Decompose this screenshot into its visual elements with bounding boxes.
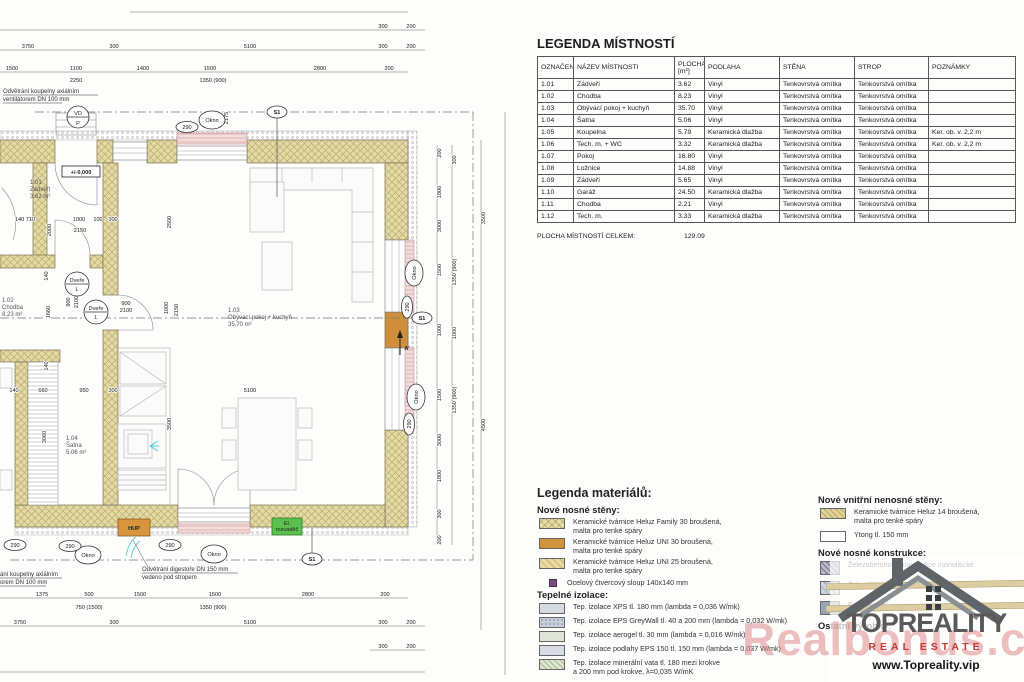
table-cell: Chodba bbox=[574, 91, 675, 103]
svg-text:S1: S1 bbox=[274, 110, 281, 116]
svg-text:290: 290 bbox=[405, 302, 411, 311]
table-column-header: POZNÁMKY bbox=[929, 57, 1016, 79]
dimension-label: 300 bbox=[378, 620, 387, 626]
table-row: 1.11Chodba2.21VinylTenkovrstvá omítkaTen… bbox=[538, 199, 1016, 211]
table-cell: Tech. m. + WC bbox=[574, 139, 675, 151]
svg-text:290: 290 bbox=[65, 544, 74, 550]
table-row: 1.03Obývací pokoj + kuchyň35.70VinylTenk… bbox=[538, 103, 1016, 115]
table-cell: Vinyl bbox=[705, 91, 780, 103]
dimension-label: 100 bbox=[93, 217, 102, 223]
table-column-header: NÁZEV MÍSTNOSTI bbox=[574, 57, 675, 79]
dimension-label: 300 bbox=[452, 155, 458, 164]
dimension-label: 200 bbox=[437, 535, 443, 544]
table-cell: 1.02 bbox=[538, 91, 574, 103]
vd-p-marker: VDP bbox=[67, 106, 89, 128]
dimension-label: 1350 (900) bbox=[199, 78, 226, 84]
dimension-label: 3000 bbox=[437, 434, 443, 446]
dimension-label: 950 bbox=[79, 388, 88, 394]
table-cell: Obývací pokoj + kuchyň bbox=[574, 103, 675, 115]
table-row: 1.10Garáž24.50Keramická dlažbaTenkovrstv… bbox=[538, 187, 1016, 199]
dimension-label: 1000 bbox=[452, 327, 458, 339]
materials-item-label: Ytong tl. 150 mm bbox=[854, 531, 908, 540]
materials-item-label: Tep. izolace minerální vata tl. 180 mezi… bbox=[573, 659, 720, 676]
plan-marker: S1 bbox=[412, 312, 432, 324]
table-cell bbox=[929, 175, 1016, 187]
table-cell: Tenkovrstvá omítka bbox=[780, 79, 855, 91]
plan-marker: 290 bbox=[59, 541, 81, 552]
svg-text:Okno: Okno bbox=[81, 553, 94, 559]
table-column-header: PODLAHA bbox=[705, 57, 780, 79]
table-cell: Tenkovrstvá omítka bbox=[855, 187, 929, 199]
dimension-label: 5100 bbox=[244, 620, 256, 626]
table-row: 1.12Tech. m.3.33Keramická dlažbaTenkovrs… bbox=[538, 211, 1016, 223]
dimension-label: 300 bbox=[108, 217, 117, 223]
dimension-label: 660 bbox=[38, 388, 47, 394]
dimension-label: 2150 bbox=[74, 228, 86, 234]
materials-item-label: Keramické tvárnice Heluz UNI 30 broušená… bbox=[573, 538, 713, 555]
table-cell: Tenkovrstvá omítka bbox=[855, 91, 929, 103]
table-column-header: OZNAČENÍ bbox=[538, 57, 574, 79]
table-cell: Tenkovrstvá omítka bbox=[855, 175, 929, 187]
sw-heluz14-swatch-icon bbox=[820, 508, 846, 519]
table-row: 1.08Ložnice14.88VinylTenkovrstvá omítkaT… bbox=[538, 163, 1016, 175]
table-cell bbox=[929, 79, 1016, 91]
svg-text:+/-0,000: +/-0,000 bbox=[71, 170, 92, 176]
dimension-label: 2800 bbox=[302, 592, 314, 598]
plan-marker: 290 bbox=[404, 413, 415, 435]
table-cell: 1.04 bbox=[538, 115, 574, 127]
dimension-label: 2100 bbox=[120, 308, 132, 314]
table-cell: Vinyl bbox=[705, 199, 780, 211]
plan-marker: 290 bbox=[176, 122, 198, 133]
table-row: 1.02Chodba8.23VinylTenkovrstvá omítkaTen… bbox=[538, 91, 1016, 103]
dimension-label: 5100 bbox=[244, 44, 256, 50]
sw-ytong-swatch-icon bbox=[820, 531, 846, 542]
watermark-tagline: REAL ESTATE bbox=[828, 641, 1024, 653]
dimension-label: 2150 bbox=[174, 304, 180, 316]
table-cell: 8.23 bbox=[675, 91, 705, 103]
table-row: 1.05Koupelna5.79Keramická dlažbaTenkovrs… bbox=[538, 127, 1016, 139]
plan-marker: 290 bbox=[159, 540, 181, 551]
materials-legend-item: Keramické tvárnice Heluz 14 broušená,mal… bbox=[818, 508, 1024, 525]
svg-text:ventilátorem DN 100 mm: ventilátorem DN 100 mm bbox=[3, 97, 69, 103]
sw-eps-swatch-icon bbox=[539, 617, 565, 628]
materials-item-label: Keramické tvárnice Heluz Family 30 brouš… bbox=[573, 518, 722, 535]
dimension-label: 3750 bbox=[22, 44, 34, 50]
dimension-label: 1400 bbox=[137, 66, 149, 72]
svg-text:290: 290 bbox=[182, 125, 191, 131]
svg-text:ání koupelny axiálním: ání koupelny axiálním bbox=[0, 572, 58, 578]
svg-text:P: P bbox=[76, 121, 80, 127]
dimension-label: 200 bbox=[380, 592, 389, 598]
table-cell: Tenkovrstvá omítka bbox=[780, 91, 855, 103]
materials-section-heading: Nové vnitřní nenosné stěny: bbox=[818, 495, 1024, 505]
table-cell: Pokoj bbox=[574, 151, 675, 163]
sw-uni25-swatch-icon bbox=[539, 558, 565, 569]
svg-text:L: L bbox=[94, 315, 97, 321]
watermark-url: www.Topreality.vip bbox=[828, 658, 1024, 672]
table-cell bbox=[929, 187, 1016, 199]
dimension-label: 1500 bbox=[204, 66, 216, 72]
table-cell: 14.88 bbox=[675, 163, 705, 175]
dimension-label: 300 bbox=[109, 620, 118, 626]
dimension-label: 1000 bbox=[73, 217, 85, 223]
room-label: 1.01Zádveří3.62 m² bbox=[30, 180, 51, 200]
dimension-label: 1350 (900) bbox=[452, 258, 458, 285]
sw-aerogel-swatch-icon bbox=[539, 631, 565, 642]
dimension-label: 2000 bbox=[47, 224, 53, 236]
sw-uni30-swatch-icon bbox=[539, 538, 565, 549]
dimension-label: 1000 bbox=[437, 324, 443, 336]
table-cell: Vinyl bbox=[705, 103, 780, 115]
dimension-label: 1000 bbox=[164, 302, 170, 314]
table-row: 1.04Šatna5.06VinylTenkovrstvá omítkaTenk… bbox=[538, 115, 1016, 127]
table-row: 1.06Tech. m. + WC3.32Keramická dlažbaTen… bbox=[538, 139, 1016, 151]
table-cell: Tenkovrstvá omítka bbox=[780, 103, 855, 115]
dimension-label: 1500 bbox=[437, 389, 443, 401]
table-cell: Tenkovrstvá omítka bbox=[855, 199, 929, 211]
dimension-label: 200 bbox=[406, 24, 415, 30]
table-cell: Tenkovrstvá omítka bbox=[855, 211, 929, 223]
table-cell: Tenkovrstvá omítka bbox=[855, 163, 929, 175]
materials-legend-item: Keramické tvárnice Heluz UNI 30 broušená… bbox=[537, 538, 807, 555]
plan-marker: Okno bbox=[201, 545, 227, 563]
table-cell: Vinyl bbox=[705, 79, 780, 91]
svg-text:Okno: Okno bbox=[412, 266, 418, 279]
dimension-label: 1800 bbox=[437, 470, 443, 482]
svg-text:Dveře: Dveře bbox=[89, 306, 104, 312]
dimension-label: 3500 bbox=[481, 212, 487, 224]
table-cell bbox=[929, 211, 1016, 223]
dimension-label: 140 bbox=[44, 271, 50, 280]
dimension-label: 1350 (900) bbox=[199, 605, 226, 611]
dimension-label: 200 bbox=[406, 644, 415, 650]
dimension-label: 750 (1500) bbox=[75, 605, 102, 611]
dimension-label: 140 710 bbox=[15, 217, 35, 223]
table-cell: Ker. ob. v. 2,2 m bbox=[929, 127, 1016, 139]
plan-marker: Okno bbox=[407, 384, 425, 410]
table-cell: Tenkovrstvá omítka bbox=[780, 199, 855, 211]
dimension-label: 300 bbox=[108, 388, 117, 394]
svg-text:HUP: HUP bbox=[128, 526, 140, 532]
table-cell: Zádveří bbox=[574, 175, 675, 187]
table-cell: Tenkovrstvá omítka bbox=[855, 127, 929, 139]
table-row: 1.09Zádveří5.65VinylTenkovrstvá omítkaTe… bbox=[538, 175, 1016, 187]
dimension-label: 2250 bbox=[70, 78, 82, 84]
sw-mineral-swatch-icon bbox=[539, 659, 565, 670]
table-cell: Tenkovrstvá omítka bbox=[780, 127, 855, 139]
dimension-label: 300 bbox=[109, 44, 118, 50]
sw-floor-swatch-icon bbox=[539, 645, 565, 656]
table-cell: Tenkovrstvá omítka bbox=[780, 115, 855, 127]
room-label: 1.04Šatna5.06 m² bbox=[66, 436, 86, 456]
table-row: 1.07Pokoj16.80VinylTenkovrstvá omítkaTen… bbox=[538, 151, 1016, 163]
table-cell: Garáž bbox=[574, 187, 675, 199]
table-cell: Vinyl bbox=[705, 151, 780, 163]
svg-text:orem DN 100 mm: orem DN 100 mm bbox=[0, 580, 47, 586]
room-label: 1.02Chodba8.23 m² bbox=[2, 298, 24, 318]
svg-text:S1: S1 bbox=[419, 316, 426, 322]
table-total-label: PLOCHA MÍSTNOSTÍ CELKEM: bbox=[537, 233, 635, 240]
walls bbox=[0, 140, 408, 527]
dimension-label: 300 bbox=[378, 644, 387, 650]
table-cell: Tenkovrstvá omítka bbox=[780, 139, 855, 151]
materials-legend-title: Legenda materiálů: bbox=[537, 486, 652, 500]
svg-text:Odvětrání digestoře DN 150 mm: Odvětrání digestoře DN 150 mm bbox=[142, 567, 228, 573]
table-cell: 24.50 bbox=[675, 187, 705, 199]
watermark-brand: TOPREALITY bbox=[828, 608, 1024, 639]
room-legend-table: OZNAČENÍNÁZEV MÍSTNOSTIPLOCHA [m²]PODLAH… bbox=[537, 56, 1016, 223]
table-column-header: STĚNA bbox=[780, 57, 855, 79]
table-cell: Keramická dlažba bbox=[705, 187, 780, 199]
floor-plan: HUP El. rozvaděč +/-0,000 A' bbox=[0, 0, 530, 682]
materials-item-label: Ocelový čtvercový sloup 140x140 mm bbox=[567, 579, 688, 588]
plan-marker: Okno bbox=[405, 260, 423, 286]
materials-legend-item: Ocelový čtvercový sloup 140x140 mm bbox=[537, 579, 807, 588]
svg-text:A': A' bbox=[404, 346, 410, 352]
table-cell: Tech. m. bbox=[574, 211, 675, 223]
table-cell: Vinyl bbox=[705, 175, 780, 187]
dimension-label: 1500 bbox=[134, 592, 146, 598]
materials-item-label: Tep. izolace aerogel tl. 30 mm (lambda =… bbox=[573, 631, 745, 640]
table-cell: Tenkovrstvá omítka bbox=[780, 187, 855, 199]
table-cell: Tenkovrstvá omítka bbox=[780, 151, 855, 163]
svg-text:290: 290 bbox=[407, 419, 413, 428]
dimension-label: 300 bbox=[378, 24, 387, 30]
svg-text:S1: S1 bbox=[309, 557, 316, 563]
sw-family-swatch-icon bbox=[539, 518, 565, 529]
table-cell: 5.79 bbox=[675, 127, 705, 139]
plan-marker: 290 bbox=[402, 296, 413, 318]
dimension-label: 3060 bbox=[42, 431, 48, 443]
room-legend-title: LEGENDA MÍSTNOSTÍ bbox=[537, 36, 674, 51]
materials-item-label: Keramické tvárnice Heluz UNI 25 broušená… bbox=[573, 558, 713, 575]
dvere-marker: DveřeL bbox=[84, 300, 108, 324]
table-cell: 35.70 bbox=[675, 103, 705, 115]
dimension-label: 1375 bbox=[36, 592, 48, 598]
table-cell: Keramická dlažba bbox=[705, 127, 780, 139]
table-cell: 1.03 bbox=[538, 103, 574, 115]
elevation-label: +/-0,000 bbox=[62, 166, 100, 177]
table-cell: Ker. ob. v. 2,2 m bbox=[929, 139, 1016, 151]
table-cell: Chodba bbox=[574, 199, 675, 211]
table-cell: 5.06 bbox=[675, 115, 705, 127]
svg-text:VD: VD bbox=[74, 111, 82, 117]
dimension-label: 200 bbox=[406, 44, 415, 50]
table-cell: Ložnice bbox=[574, 163, 675, 175]
plan-marker: Okno bbox=[199, 111, 225, 129]
table-cell: 1.06 bbox=[538, 139, 574, 151]
table-column-header: PLOCHA [m²] bbox=[675, 57, 705, 79]
table-cell: Koupelna bbox=[574, 127, 675, 139]
table-cell: Tenkovrstvá omítka bbox=[855, 79, 929, 91]
table-cell: 1.10 bbox=[538, 187, 574, 199]
table-cell: 1.09 bbox=[538, 175, 574, 187]
dimension-label: 900 bbox=[66, 297, 72, 306]
table-column-header: STROP bbox=[855, 57, 929, 79]
table-cell: Tenkovrstvá omítka bbox=[780, 211, 855, 223]
table-cell: 5.65 bbox=[675, 175, 705, 187]
room-label: 1.03Obývací pokoj + kuchyň35.70 m² bbox=[228, 308, 292, 328]
table-cell: 3.62 bbox=[675, 79, 705, 91]
dimension-label: 140 bbox=[9, 388, 18, 394]
dimension-label: 1500 bbox=[6, 66, 18, 72]
dimension-label: 200 bbox=[406, 620, 415, 626]
table-cell: Zádveří bbox=[574, 79, 675, 91]
table-cell: 1.07 bbox=[538, 151, 574, 163]
table-cell: Tenkovrstvá omítka bbox=[855, 103, 929, 115]
dimension-label: 200 bbox=[437, 148, 443, 157]
materials-section-heading: Nové nosné stěny: bbox=[537, 505, 807, 515]
svg-text:Okno: Okno bbox=[414, 390, 420, 403]
table-cell: Tenkovrstvá omítka bbox=[855, 151, 929, 163]
el-rozvadec-box: El. rozvaděč bbox=[272, 518, 302, 535]
table-cell: 1.12 bbox=[538, 211, 574, 223]
materials-legend-item: Keramické tvárnice Heluz Family 30 brouš… bbox=[537, 518, 807, 535]
table-cell bbox=[929, 163, 1016, 175]
svg-text:rozvaděč: rozvaděč bbox=[276, 527, 299, 533]
dimension-label: 1100 bbox=[70, 66, 82, 72]
svg-text:Okno: Okno bbox=[205, 118, 218, 124]
table-cell: 16.80 bbox=[675, 151, 705, 163]
svg-text:Dveře: Dveře bbox=[70, 278, 85, 284]
dimension-label: 3000 bbox=[437, 220, 443, 232]
dimension-label: 1350 (900) bbox=[452, 386, 458, 413]
dimension-label: 1500 bbox=[209, 592, 221, 598]
table-cell: Keramická dlažba bbox=[705, 211, 780, 223]
plan-marker: S1 bbox=[302, 553, 322, 565]
table-cell: Vinyl bbox=[705, 115, 780, 127]
materials-legend-item: Ytong tl. 150 mm bbox=[818, 531, 1024, 542]
table-cell: 3.33 bbox=[675, 211, 705, 223]
dimension-label: 2500 bbox=[167, 216, 173, 228]
sw-steel-swatch-icon bbox=[549, 579, 557, 587]
dimension-label: 140 bbox=[44, 361, 50, 370]
table-cell: Tenkovrstvá omítka bbox=[855, 139, 929, 151]
screenshot-root: HUP El. rozvaděč +/-0,000 A' bbox=[0, 0, 1024, 682]
table-cell: 1.05 bbox=[538, 127, 574, 139]
table-cell: Vinyl bbox=[705, 163, 780, 175]
table-cell bbox=[929, 199, 1016, 211]
dimension-label: 300 bbox=[437, 509, 443, 518]
table-cell: Tenkovrstvá omítka bbox=[780, 175, 855, 187]
svg-text:290: 290 bbox=[10, 543, 19, 549]
table-cell bbox=[929, 115, 1016, 127]
svg-text:L: L bbox=[75, 287, 78, 293]
table-cell bbox=[929, 151, 1016, 163]
dimension-label: 2100 bbox=[74, 296, 80, 308]
hup-box: HUP bbox=[118, 519, 150, 558]
dimension-label: 500 bbox=[84, 592, 93, 598]
dimension-label: 1660 bbox=[46, 306, 52, 318]
table-total-value: 129.09 bbox=[684, 233, 705, 240]
dimension-label: 3500 bbox=[167, 418, 173, 430]
table-cell: 3.32 bbox=[675, 139, 705, 151]
dimension-label: 3750 bbox=[14, 620, 26, 626]
svg-text:vedeno pod stropem: vedeno pod stropem bbox=[142, 575, 197, 581]
table-row: 1.01Zádveří3.62VinylTenkovrstvá omítkaTe… bbox=[538, 79, 1016, 91]
svg-text:Odvětrání koupelny axiálním: Odvětrání koupelny axiálním bbox=[3, 89, 79, 95]
table-cell: 2.21 bbox=[675, 199, 705, 211]
table-cell: 1.08 bbox=[538, 163, 574, 175]
table-cell: Tenkovrstvá omítka bbox=[855, 115, 929, 127]
table-cell bbox=[929, 103, 1016, 115]
sw-xps-swatch-icon bbox=[539, 603, 565, 614]
dimension-label: 900 bbox=[121, 301, 130, 307]
dimension-label: 1500 bbox=[437, 264, 443, 276]
table-cell: Šatna bbox=[574, 115, 675, 127]
svg-text:290: 290 bbox=[165, 543, 174, 549]
dimension-label: 300 bbox=[378, 44, 387, 50]
dimension-label: 5100 bbox=[244, 388, 256, 394]
plan-marker: 290 bbox=[4, 540, 26, 551]
dvere-marker: DveřeL bbox=[65, 272, 89, 296]
plan-marker: S1 bbox=[267, 106, 287, 118]
table-cell bbox=[929, 91, 1016, 103]
table-cell: 1.01 bbox=[538, 79, 574, 91]
table-cell: Tenkovrstvá omítka bbox=[780, 163, 855, 175]
table-cell: Keramická dlažba bbox=[705, 139, 780, 151]
dimension-label: 2800 bbox=[314, 66, 326, 72]
svg-text:Okno: Okno bbox=[207, 552, 220, 558]
materials-item-label: Keramické tvárnice Heluz 14 broušená,mal… bbox=[854, 508, 979, 525]
table-cell: 1.11 bbox=[538, 199, 574, 211]
dimension-label: 200 bbox=[384, 66, 393, 72]
dimension-label: 1800 bbox=[437, 186, 443, 198]
materials-legend-item: Keramické tvárnice Heluz UNI 25 broušená… bbox=[537, 558, 807, 575]
materials-section-heading: Tepelné izolace: bbox=[537, 590, 807, 600]
dimension-label: 4500 bbox=[481, 419, 487, 431]
materials-item-label: Tep. izolace XPS tl. 180 mm (lambda = 0,… bbox=[573, 603, 740, 612]
